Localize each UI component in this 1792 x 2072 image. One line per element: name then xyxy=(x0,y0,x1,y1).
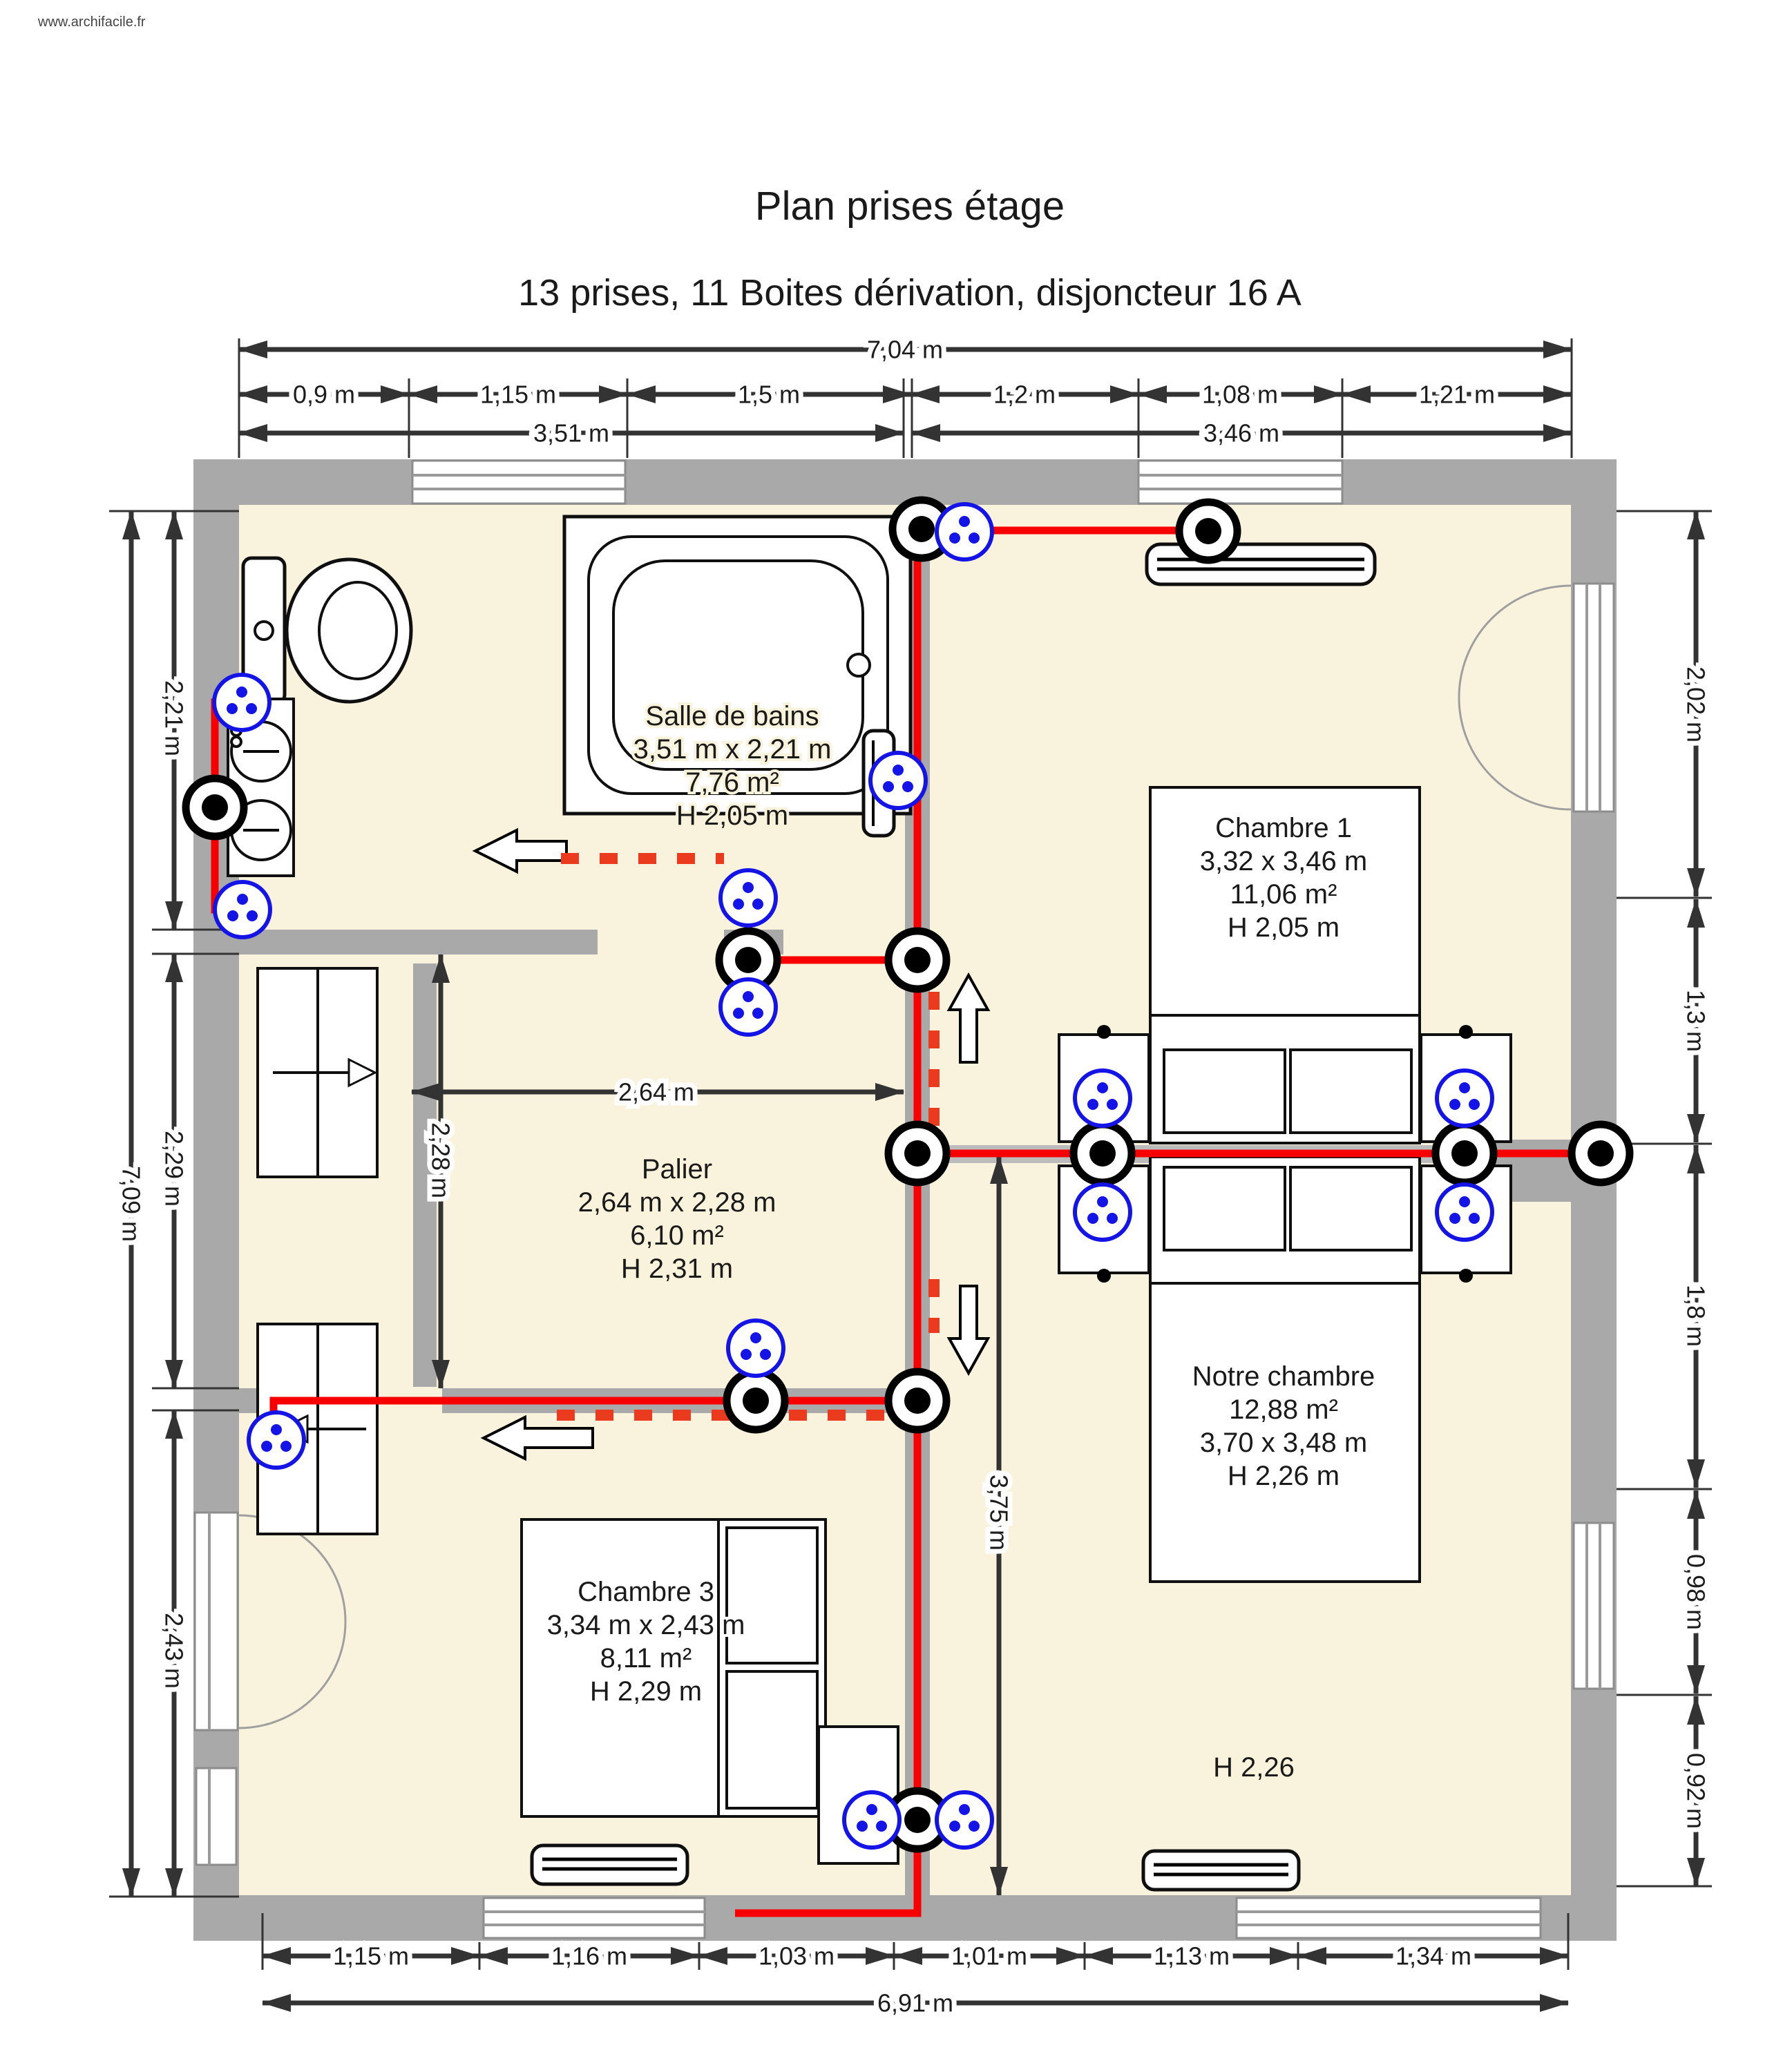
dim-left-seg-0: 2,21 m xyxy=(160,680,189,756)
power-outlet-icon xyxy=(1075,1071,1130,1126)
junction-box-icon xyxy=(186,778,244,836)
floor-plan-page: www.archifacile.fr Plan prises étage 13 … xyxy=(0,0,1792,2072)
dim-top-seg-4: 1,08 m xyxy=(1202,381,1278,409)
room-height: H 2,05 m xyxy=(1228,912,1340,943)
room-area: 11,06 m² xyxy=(1230,879,1337,910)
toilet xyxy=(243,558,411,703)
room-dimensions: 3,32 x 3,46 m xyxy=(1200,846,1367,876)
power-outlet-icon xyxy=(870,753,926,808)
dim-palier-height: 2,28 m xyxy=(427,1122,455,1198)
junction-box-icon xyxy=(888,1372,946,1430)
room-dimensions: 3,70 x 3,48 m xyxy=(1200,1428,1367,1458)
dim-palier-width: 2,64 m xyxy=(618,1078,694,1106)
dim-right-seg-2: 1,8 m xyxy=(1682,1285,1710,1347)
dim-left-total: 7,09 m xyxy=(117,1166,146,1242)
power-outlet-icon xyxy=(844,1792,899,1848)
room-name: Chambre 3 xyxy=(578,1577,714,1607)
window-right-notre-chambre xyxy=(1574,1523,1614,1689)
dim-bottom-seg-5: 1,34 m xyxy=(1395,1942,1471,1970)
room-height: H 2,29 m xyxy=(590,1676,702,1707)
room-height: H 2,31 m xyxy=(621,1254,733,1284)
power-outlet-icon xyxy=(721,979,776,1035)
height-annotation: H 2,26 xyxy=(1213,1752,1295,1783)
page-subtitle: 13 prises, 11 Boites dérivation, disjonc… xyxy=(518,272,1302,314)
room-height: H 2,05 m xyxy=(676,800,788,831)
dim-top-seg-1: 1,15 m xyxy=(480,381,556,409)
power-outlet-icon xyxy=(937,1792,992,1848)
junction-box-icon xyxy=(888,931,946,989)
staircase-upper xyxy=(258,968,377,1177)
dim-left-seg-2: 2,43 m xyxy=(160,1613,189,1689)
junction-box-icon xyxy=(1179,502,1237,560)
dim-notre-chambre-height: 3,75 m xyxy=(985,1475,1013,1551)
junction-box-icon xyxy=(1436,1124,1494,1182)
room-dimensions: 3,51 m x 2,21 m xyxy=(633,734,832,765)
room-name: Salle de bains xyxy=(645,701,819,731)
radiator-chambre3 xyxy=(532,1845,687,1884)
power-outlet-icon xyxy=(1437,1184,1492,1240)
power-outlet-icon xyxy=(728,1321,783,1376)
room-name: Palier xyxy=(642,1154,712,1184)
window-bottom-chambre3 xyxy=(484,1898,705,1938)
power-outlet-icon xyxy=(215,882,270,937)
window-top-left xyxy=(412,461,625,503)
power-outlet-icon xyxy=(214,675,269,730)
power-outlet-icon xyxy=(937,504,992,559)
power-outlet-icon xyxy=(249,1412,304,1468)
room-area: 7,76 m² xyxy=(685,767,779,798)
wall-top xyxy=(193,459,1617,505)
junction-box-icon xyxy=(888,1124,946,1182)
dim-top-half-0: 3,51 m xyxy=(533,419,609,448)
dim-bottom-seg-1: 1,16 m xyxy=(551,1942,627,1970)
radiator-notre-chambre xyxy=(1143,1851,1299,1890)
power-outlet-icon xyxy=(1075,1184,1130,1240)
window-left-bottom xyxy=(196,1768,236,1865)
floor-plan-canvas: www.archifacile.fr Plan prises étage 13 … xyxy=(0,0,1792,2072)
dim-left-seg-1: 2,29 m xyxy=(160,1131,189,1207)
room-dimensions: 2,64 m x 2,28 m xyxy=(578,1187,776,1218)
dim-right-seg-1: 1,3 m xyxy=(1682,990,1710,1052)
room-name: Notre chambre xyxy=(1192,1361,1375,1392)
dim-top-seg-5: 1,21 m xyxy=(1419,381,1495,409)
junction-box-icon xyxy=(1074,1124,1132,1182)
power-outlet-icon xyxy=(1437,1071,1492,1126)
room-area: 8,11 m² xyxy=(600,1643,692,1673)
room-area: 6,10 m² xyxy=(630,1220,724,1251)
dim-right-seg-0: 2,02 m xyxy=(1682,666,1710,742)
junction-box-icon xyxy=(727,1372,785,1430)
dim-top-seg-3: 1,2 m xyxy=(993,381,1056,409)
page-title: Plan prises étage xyxy=(755,184,1065,229)
dim-top-seg-2: 1,5 m xyxy=(738,381,800,409)
dim-bottom-seg-3: 1,01 m xyxy=(951,1942,1027,1970)
dim-top-half-1: 3,46 m xyxy=(1203,419,1279,448)
junction-box-icon xyxy=(1572,1124,1630,1182)
dim-right-seg-3: 0,98 m xyxy=(1682,1554,1710,1630)
dim-bottom-total: 6,91 m xyxy=(877,1989,953,2017)
room-dimensions: 3,34 m x 2,43 m xyxy=(547,1610,745,1640)
watermark: www.archifacile.fr xyxy=(37,15,146,30)
radiator-chambre1 xyxy=(1147,544,1375,584)
dim-bottom-seg-0: 1,15 m xyxy=(333,1942,409,1970)
dim-top-seg-0: 0,9 m xyxy=(293,381,355,409)
room-area: 12,88 m² xyxy=(1229,1394,1338,1425)
room-height: H 2,26 m xyxy=(1228,1461,1340,1491)
dim-bottom-seg-2: 1,03 m xyxy=(759,1942,835,1970)
window-top-right xyxy=(1138,461,1342,503)
dim-bottom-seg-4: 1,13 m xyxy=(1154,1942,1230,1970)
power-outlet-icon xyxy=(721,870,776,925)
room-name: Chambre 1 xyxy=(1215,813,1352,843)
dim-right-seg-4: 0,92 m xyxy=(1682,1753,1710,1829)
dim-top-total: 7,04 m xyxy=(867,336,943,364)
window-bottom-notre-chambre xyxy=(1237,1898,1541,1938)
